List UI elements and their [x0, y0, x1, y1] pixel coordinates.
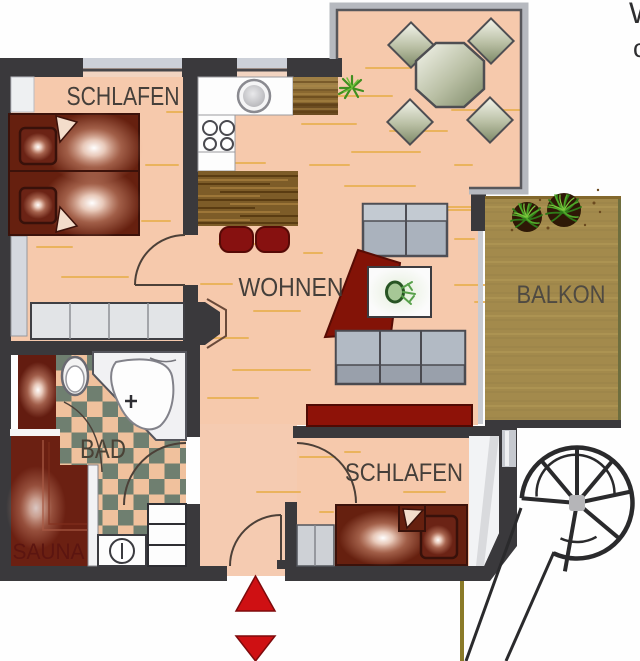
svg-text:BAD: BAD [80, 434, 126, 464]
svg-text:SCHLAFEN: SCHLAFEN [67, 83, 180, 111]
svg-text:BALKON: BALKON [517, 281, 606, 309]
svg-text:W: W [629, 0, 640, 30]
svg-text:WOHNEN: WOHNEN [239, 274, 344, 302]
svg-text:SCHLAFEN: SCHLAFEN [345, 459, 463, 487]
svg-text:SAUNA: SAUNA [13, 539, 85, 564]
svg-text:c: c [633, 33, 640, 63]
